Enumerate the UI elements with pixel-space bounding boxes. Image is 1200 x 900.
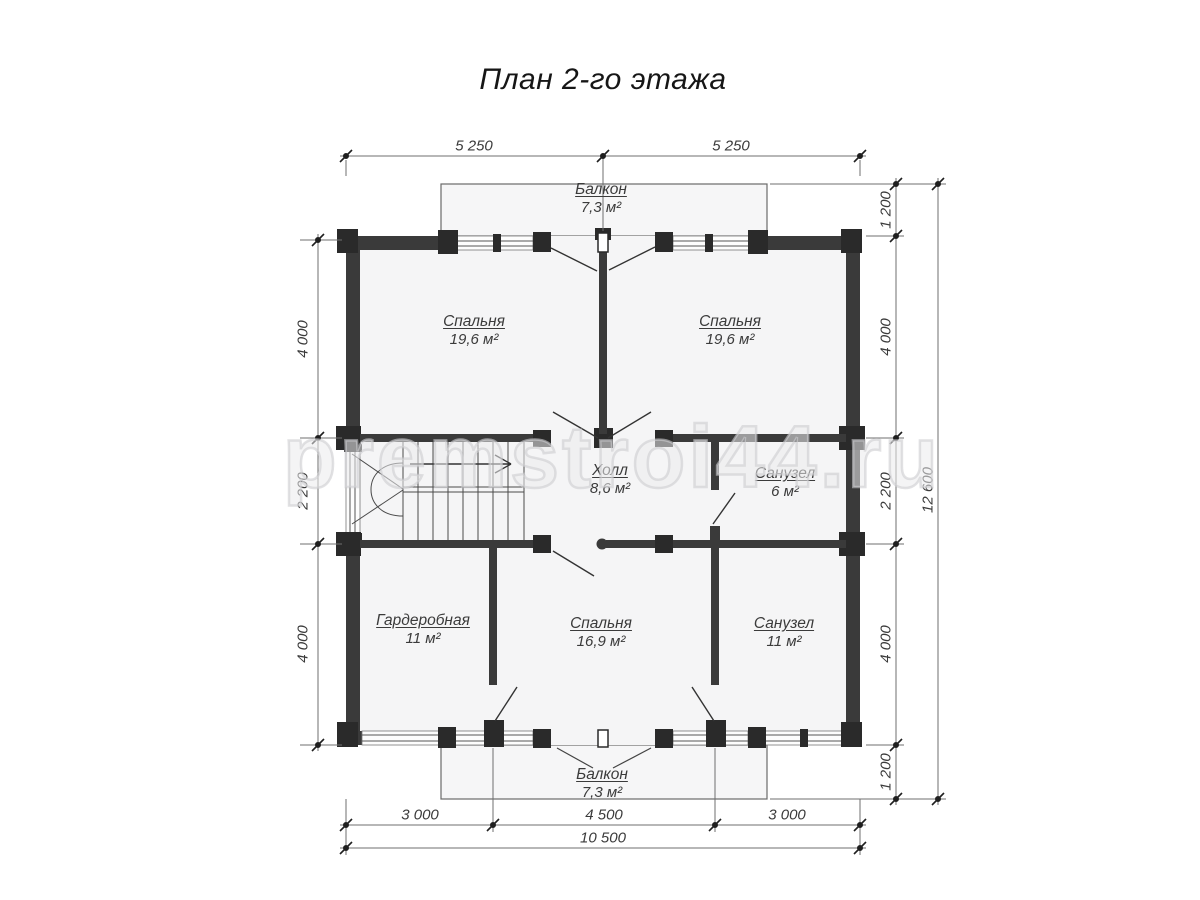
dim-left-1: 4 000: [295, 320, 312, 358]
room-label-bedroom-bottom: Спальня 16,9 м²: [570, 615, 632, 651]
dim-right-total: 12 600: [920, 467, 937, 513]
dim-right-4: 4 000: [878, 625, 895, 663]
dim-right-2: 4 000: [878, 318, 895, 356]
dim-left-3: 4 000: [295, 625, 312, 663]
floor-plan-drawing: [0, 0, 1200, 900]
window-bottom-left-outer: [362, 731, 441, 745]
dim-bottom-total: 10 500: [580, 830, 626, 847]
dim-right-5: 1 200: [878, 753, 895, 791]
dim-right-1: 1 200: [878, 191, 895, 229]
dim-bottom-2: 4 500: [585, 807, 623, 824]
room-label-hall: Холл 8,6 м²: [590, 462, 630, 498]
room-label-bathroom-small: Санузел 6 м²: [755, 465, 815, 501]
floor-plan-page: План 2-го этажа: [0, 0, 1200, 900]
dim-left-2: 2 200: [295, 472, 312, 510]
room-label-balcony-bottom: Балкон 7,3 м²: [576, 766, 628, 802]
dim-bottom-3: 3 000: [768, 807, 806, 824]
dim-bottom-1: 3 000: [401, 807, 439, 824]
room-label-balcony-top: Балкон 7,3 м²: [575, 181, 627, 217]
window-bottom-right-outer: [764, 729, 842, 747]
dim-top-left: 5 250: [455, 138, 493, 155]
room-label-bathroom-large: Санузел 11 м²: [754, 615, 814, 651]
room-label-bedroom-top-right: Спальня 19,6 м²: [699, 313, 761, 349]
room-label-wardrobe: Гардеробная 11 м²: [376, 612, 470, 648]
room-label-bedroom-top-left: Спальня 19,6 м²: [443, 313, 505, 349]
dim-top-right: 5 250: [712, 138, 750, 155]
dim-right-3: 2 200: [878, 472, 895, 510]
